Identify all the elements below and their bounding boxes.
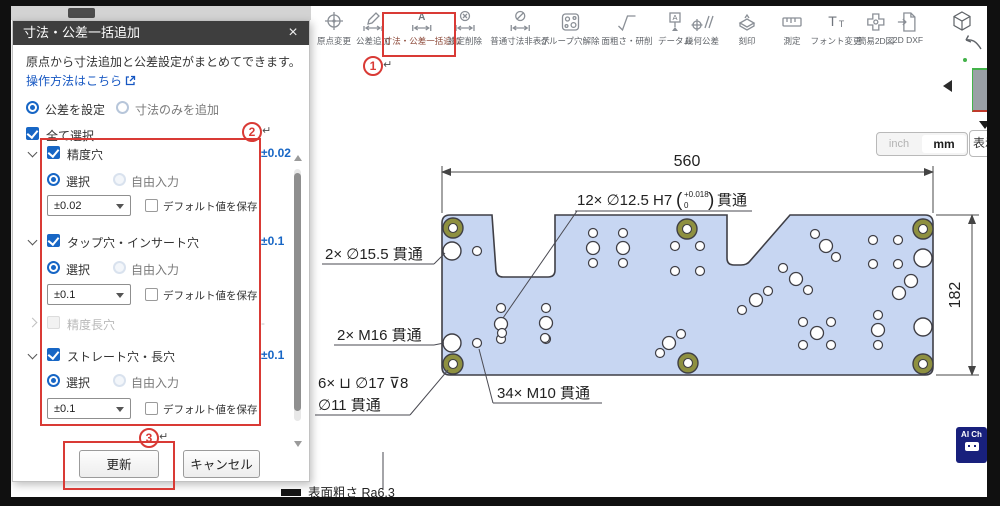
unit-inch-option[interactable]: inch [877, 138, 921, 150]
scroll-up-arrow[interactable] [294, 155, 302, 161]
precision-save-default-checkbox[interactable] [145, 199, 158, 212]
toolbar-item-label: 簡易2D図 [858, 35, 894, 47]
small-hole [671, 267, 680, 276]
small-hole [619, 259, 628, 268]
straight-free-input-radio[interactable] [113, 374, 126, 387]
small-hole [827, 318, 836, 327]
mode-label-dims-only: 寸法のみを追加 [135, 101, 219, 118]
origin-change-icon [322, 10, 346, 34]
section-precision-slot-checkbox[interactable] [47, 316, 60, 329]
medium-hole [820, 240, 833, 253]
toolbar-item-label: 測定 [780, 35, 804, 47]
large-hole [443, 242, 461, 260]
toolbar-item-label: 面粗さ・研削 [601, 35, 652, 47]
label-m10: 34× M10 貫通 [497, 385, 590, 402]
small-hole [811, 230, 820, 239]
window-top-strip [11, 6, 311, 20]
section-straight-hole-label: ストレート穴・長穴 [67, 348, 175, 365]
small-hole [542, 304, 551, 313]
toolbar-item-origin-change[interactable]: 原点変更 [317, 10, 351, 47]
small-hole [696, 267, 705, 276]
tolerance-add-icon [361, 10, 385, 34]
toolbar-item-settings-delete[interactable]: 設定削除 [448, 10, 482, 47]
small-hole [874, 341, 883, 350]
dim-560-text: 560 [674, 153, 701, 170]
small-hole [874, 311, 883, 320]
small-hole [696, 242, 705, 251]
unit-mm-option[interactable]: mm [922, 135, 966, 153]
status-dot [963, 58, 967, 62]
label-h7-paren-close: ) [708, 190, 714, 211]
external-link-icon [125, 75, 136, 86]
cropped-header-fragment [68, 8, 95, 18]
toolbar-item-surface-roughness[interactable]: 面粗さ・研削 [601, 10, 652, 47]
medium-hole [540, 317, 553, 330]
tap-save-default-checkbox[interactable] [145, 288, 158, 301]
section-precision-slot-label: 精度長穴 [67, 316, 115, 333]
dimension-tolerance-batch-add-icon: A [410, 10, 434, 34]
help-link[interactable]: 操作方法はこちら [26, 72, 136, 89]
medium-hole [790, 273, 803, 286]
group-hole-release-icon [558, 10, 582, 34]
tap-free-input-radio[interactable] [113, 261, 126, 274]
dxf-icon [896, 10, 920, 34]
dim-182-text: 182 [947, 282, 964, 309]
toolbar-item-label: 2D DXF [893, 35, 923, 45]
update-button[interactable]: 更新 [79, 450, 159, 478]
return-mark: ↵ [383, 58, 392, 71]
medium-hole [587, 242, 600, 255]
small-hole [497, 304, 506, 313]
small-hole [894, 236, 903, 245]
simple-2d-icon [864, 10, 888, 34]
counterbore-hole-center [449, 224, 458, 233]
medium-hole [663, 337, 676, 350]
precision-free-input-radio[interactable] [113, 173, 126, 186]
robot-icon [965, 442, 979, 451]
toolbar-item-group-hole-release[interactable]: グループ穴解除 [541, 10, 600, 47]
section-tap-hole-label: タップ穴・インサート穴 [67, 234, 199, 251]
chevron-down-icon[interactable] [28, 350, 38, 360]
return-mark: ↵ [262, 124, 271, 137]
geometric-tolerance-icon [690, 10, 714, 34]
straight-free-input-label: 自由入力 [131, 374, 179, 391]
section-straight-hole-checkbox[interactable] [47, 348, 60, 361]
straight-select-radio[interactable] [47, 374, 60, 387]
display-button[interactable]: 表示 [969, 130, 1000, 157]
straight-select-label: 選択 [66, 374, 90, 391]
large-hole [914, 318, 932, 336]
small-hole [869, 260, 878, 269]
close-icon[interactable]: × [283, 21, 303, 45]
toolbar-item-label: フォント変更 [810, 35, 861, 47]
precision-select-radio[interactable] [47, 173, 60, 186]
small-hole [894, 260, 903, 269]
font-change-icon: T T [824, 10, 848, 34]
toolbar-item-engraving[interactable]: 刻印 [735, 10, 759, 47]
toolbar-item-label: 刻印 [735, 35, 759, 47]
small-hole [738, 306, 747, 315]
svg-text:A: A [418, 12, 425, 23]
counterbore-hole-center [919, 360, 928, 369]
ai-chat-label: AI Ch [956, 430, 987, 439]
hide-normal-dimensions-icon [508, 10, 532, 34]
select-all-label: 全て選択 [46, 127, 94, 144]
section-precision-hole-label: 精度穴 [67, 146, 103, 163]
svg-text:A: A [672, 13, 677, 22]
toolbar-item-label: グループ穴解除 [541, 35, 600, 47]
small-hole [589, 259, 598, 268]
chevron-down-icon[interactable] [28, 236, 38, 246]
straight-save-default-checkbox[interactable] [145, 402, 158, 415]
label-cbore-1: 6× ⊔ ∅17 ⊽8 [318, 375, 408, 392]
medium-hole [893, 287, 906, 300]
small-hole [619, 229, 628, 238]
chevron-right-icon[interactable] [28, 318, 38, 328]
large-hole [443, 334, 461, 352]
batch-dimension-tolerance-dialog: 寸法・公差一括追加 × 原点から寸法追加と公差設定がまとめてできます。 操作方法… [12, 20, 310, 482]
section-tap-hole-checkbox[interactable] [47, 234, 60, 247]
tap-free-input-label: 自由入力 [131, 261, 179, 278]
label-m16: 2× M16 貫通 [337, 327, 422, 344]
settings-delete-icon [453, 10, 477, 34]
part-thumbnail[interactable] [972, 68, 999, 112]
dialog-title: 寸法・公差一括追加 [13, 21, 309, 45]
mode-radio-set-tolerance[interactable] [26, 101, 39, 114]
toolbar-item-geometric-tolerance[interactable]: 幾何公差 [685, 10, 719, 47]
surface-note-text: 表面粗さ Ra6.3 [308, 486, 395, 500]
scroll-down-arrow[interactable] [294, 441, 302, 447]
small-hole [671, 242, 680, 251]
precision-tolerance-dropdown[interactable]: ±0.02 [47, 195, 131, 216]
scrollbar-thumb[interactable] [294, 173, 301, 411]
toolbar: 原点変更 公差追加 A 寸法・公差一括追加 設定削除 普通寸法非 [311, 6, 987, 56]
section-precision-hole-checkbox[interactable] [47, 146, 60, 159]
small-hole [799, 318, 808, 327]
small-hole [473, 339, 482, 348]
view-3d-cube-icon[interactable] [950, 10, 974, 34]
small-hole [677, 330, 686, 339]
cursor-arrow-icon[interactable] [961, 33, 983, 53]
toolbar-item-font-change[interactable]: T T フォント変更 [810, 10, 861, 47]
medium-hole [905, 275, 918, 288]
precision-save-default-label: デフォルト値を保存 [163, 199, 258, 214]
tap-save-default-label: デフォルト値を保存 [163, 288, 258, 303]
counterbore-hole-center [684, 359, 693, 368]
large-hole [914, 249, 932, 267]
toolbar-item-label: 設定削除 [448, 35, 482, 47]
annotation-step-3: 3 [139, 428, 159, 448]
small-hole [764, 287, 773, 296]
chevron-down-icon[interactable] [28, 148, 38, 158]
toolbar-item-label: 幾何公差 [685, 35, 719, 47]
label-h7-paren-open: ( [676, 190, 683, 211]
label-d155: 2× ∅15.5 貫通 [325, 246, 423, 263]
collapse-panel-arrow[interactable] [943, 80, 952, 92]
tap-select-label: 選択 [66, 261, 90, 278]
measure-icon [780, 10, 804, 34]
small-hole [656, 349, 665, 358]
label-cbore-leader [410, 370, 448, 415]
tap-tolerance-dropdown[interactable]: ±0.1 [47, 284, 131, 305]
label-h7-suffix: 貫通 [717, 192, 747, 209]
small-hole [827, 341, 836, 350]
small-hole [799, 341, 808, 350]
app-window: 560 182 12× ∅12.5 H7 ( +0.018 0 ) 貫通 2× … [0, 0, 1000, 506]
svg-text:T: T [838, 19, 844, 29]
engraving-icon [735, 10, 759, 34]
counterbore-hole-center [919, 225, 928, 234]
dialog-description: 原点から寸法追加と公差設定がまとめてできます。 [26, 53, 301, 70]
datum-icon: A [663, 10, 687, 34]
small-hole [498, 329, 507, 338]
counterbore-hole-center [449, 360, 458, 369]
small-hole [473, 247, 482, 256]
counterbore-hole-center [683, 225, 692, 234]
straight-tolerance-dropdown[interactable]: ±0.1 [47, 398, 131, 419]
tap-select-radio[interactable] [47, 261, 60, 274]
small-hole [804, 286, 813, 295]
toolbar-item-2d-dxf[interactable]: 2D DXF [893, 10, 923, 45]
toolbar-item-measure[interactable]: 測定 [780, 10, 804, 47]
medium-hole [872, 324, 885, 337]
unit-toggle[interactable]: inch mm [876, 132, 968, 156]
svg-text:T: T [828, 13, 837, 29]
surface-roughness-icon [615, 10, 639, 34]
medium-hole [617, 242, 630, 255]
mode-radio-dims-only[interactable] [116, 101, 129, 114]
toolbar-item-label: 原点変更 [317, 35, 351, 47]
medium-hole [811, 327, 824, 340]
small-hole [779, 264, 788, 273]
cancel-button[interactable]: キャンセル [183, 450, 260, 478]
annotation-step-1: 1 [363, 56, 383, 76]
ai-chat-badge[interactable]: AI Ch [956, 427, 987, 463]
return-mark: ↵ [159, 430, 168, 443]
label-h7: 12× ∅12.5 H7 [577, 192, 672, 209]
medium-hole [750, 294, 763, 307]
dropdown-arrow[interactable] [979, 121, 991, 129]
small-hole [869, 236, 878, 245]
label-h7-tol-upper: +0.018 [684, 190, 709, 199]
small-hole [589, 229, 598, 238]
mode-label-set-tolerance: 公差を設定 [45, 101, 105, 118]
annotation-step-2: 2 [242, 122, 262, 142]
select-all-checkbox[interactable] [26, 127, 39, 140]
precision-free-input-label: 自由入力 [131, 173, 179, 190]
label-cbore-2: ∅11 貫通 [318, 397, 381, 414]
precision-select-label: 選択 [66, 173, 90, 190]
small-hole [541, 334, 550, 343]
straight-save-default-label: デフォルト値を保存 [163, 402, 258, 417]
surface-note-mark [281, 489, 301, 496]
label-h7-tol-lower: 0 [684, 201, 689, 210]
toolbar-item-simple-2d[interactable]: 簡易2D図 [858, 10, 894, 47]
small-hole [832, 253, 841, 262]
